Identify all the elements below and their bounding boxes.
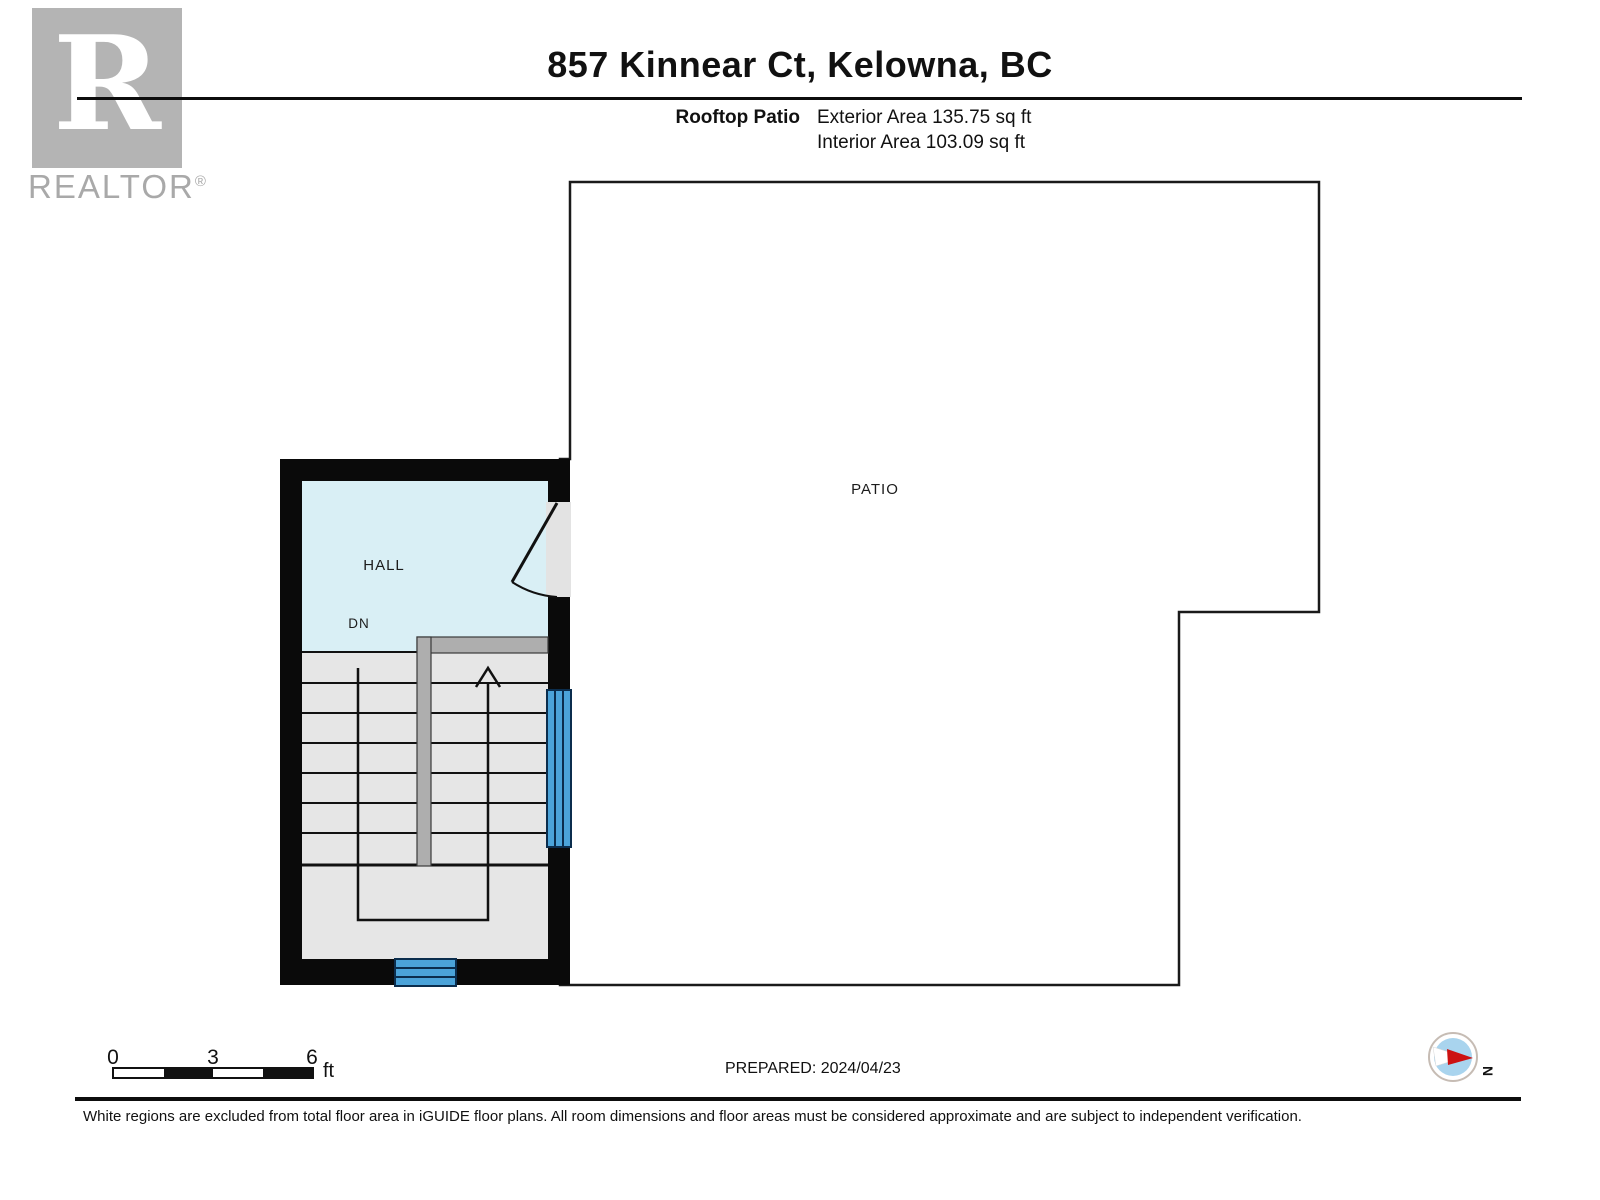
exterior-area-value: Exterior Area 135.75 sq ft [817, 107, 1031, 129]
realtor-logo: R [32, 8, 182, 168]
prepared-date: PREPARED: 2024/04/23 [725, 1060, 901, 1078]
window-right [547, 690, 571, 847]
floor-plan-page: PATIO HALL DN N R REALTOR® 857 Kinnear C… [0, 0, 1600, 1200]
floor-name-label: Rooftop Patio [500, 107, 800, 129]
hall-floor [302, 481, 548, 652]
compass: N [1429, 1033, 1496, 1081]
scale-bar-segment [164, 1069, 214, 1077]
scale-bar-segment [263, 1069, 313, 1077]
footer-divider-line [75, 1097, 1521, 1101]
stair-divider-top [417, 637, 548, 653]
title-divider-line [77, 97, 1522, 100]
scale-bar-segment [213, 1069, 263, 1077]
patio-outline [560, 182, 1319, 985]
scale-bar [112, 1067, 314, 1079]
realtor-wordmark: REALTOR® [28, 168, 208, 206]
compass-north-label: N [1480, 1066, 1496, 1076]
stair-dn-label: DN [348, 616, 370, 631]
realtor-wordmark-text: REALTOR [28, 168, 195, 205]
scale-unit-label: ft [323, 1060, 334, 1083]
floor-plan-drawing: PATIO HALL DN N [0, 0, 1600, 1200]
disclaimer-text: White regions are excluded from total fl… [83, 1108, 1302, 1125]
window-bottom [395, 959, 456, 986]
scale-bar-segment [114, 1069, 164, 1077]
registered-trademark-symbol: ® [195, 173, 208, 190]
interior-area-value: Interior Area 103.09 sq ft [817, 132, 1025, 154]
stair-divider-stem [417, 637, 431, 866]
page-title: 857 Kinnear Ct, Kelowna, BC [0, 44, 1600, 86]
hall-label: HALL [363, 557, 405, 574]
patio-label: PATIO [851, 481, 899, 498]
